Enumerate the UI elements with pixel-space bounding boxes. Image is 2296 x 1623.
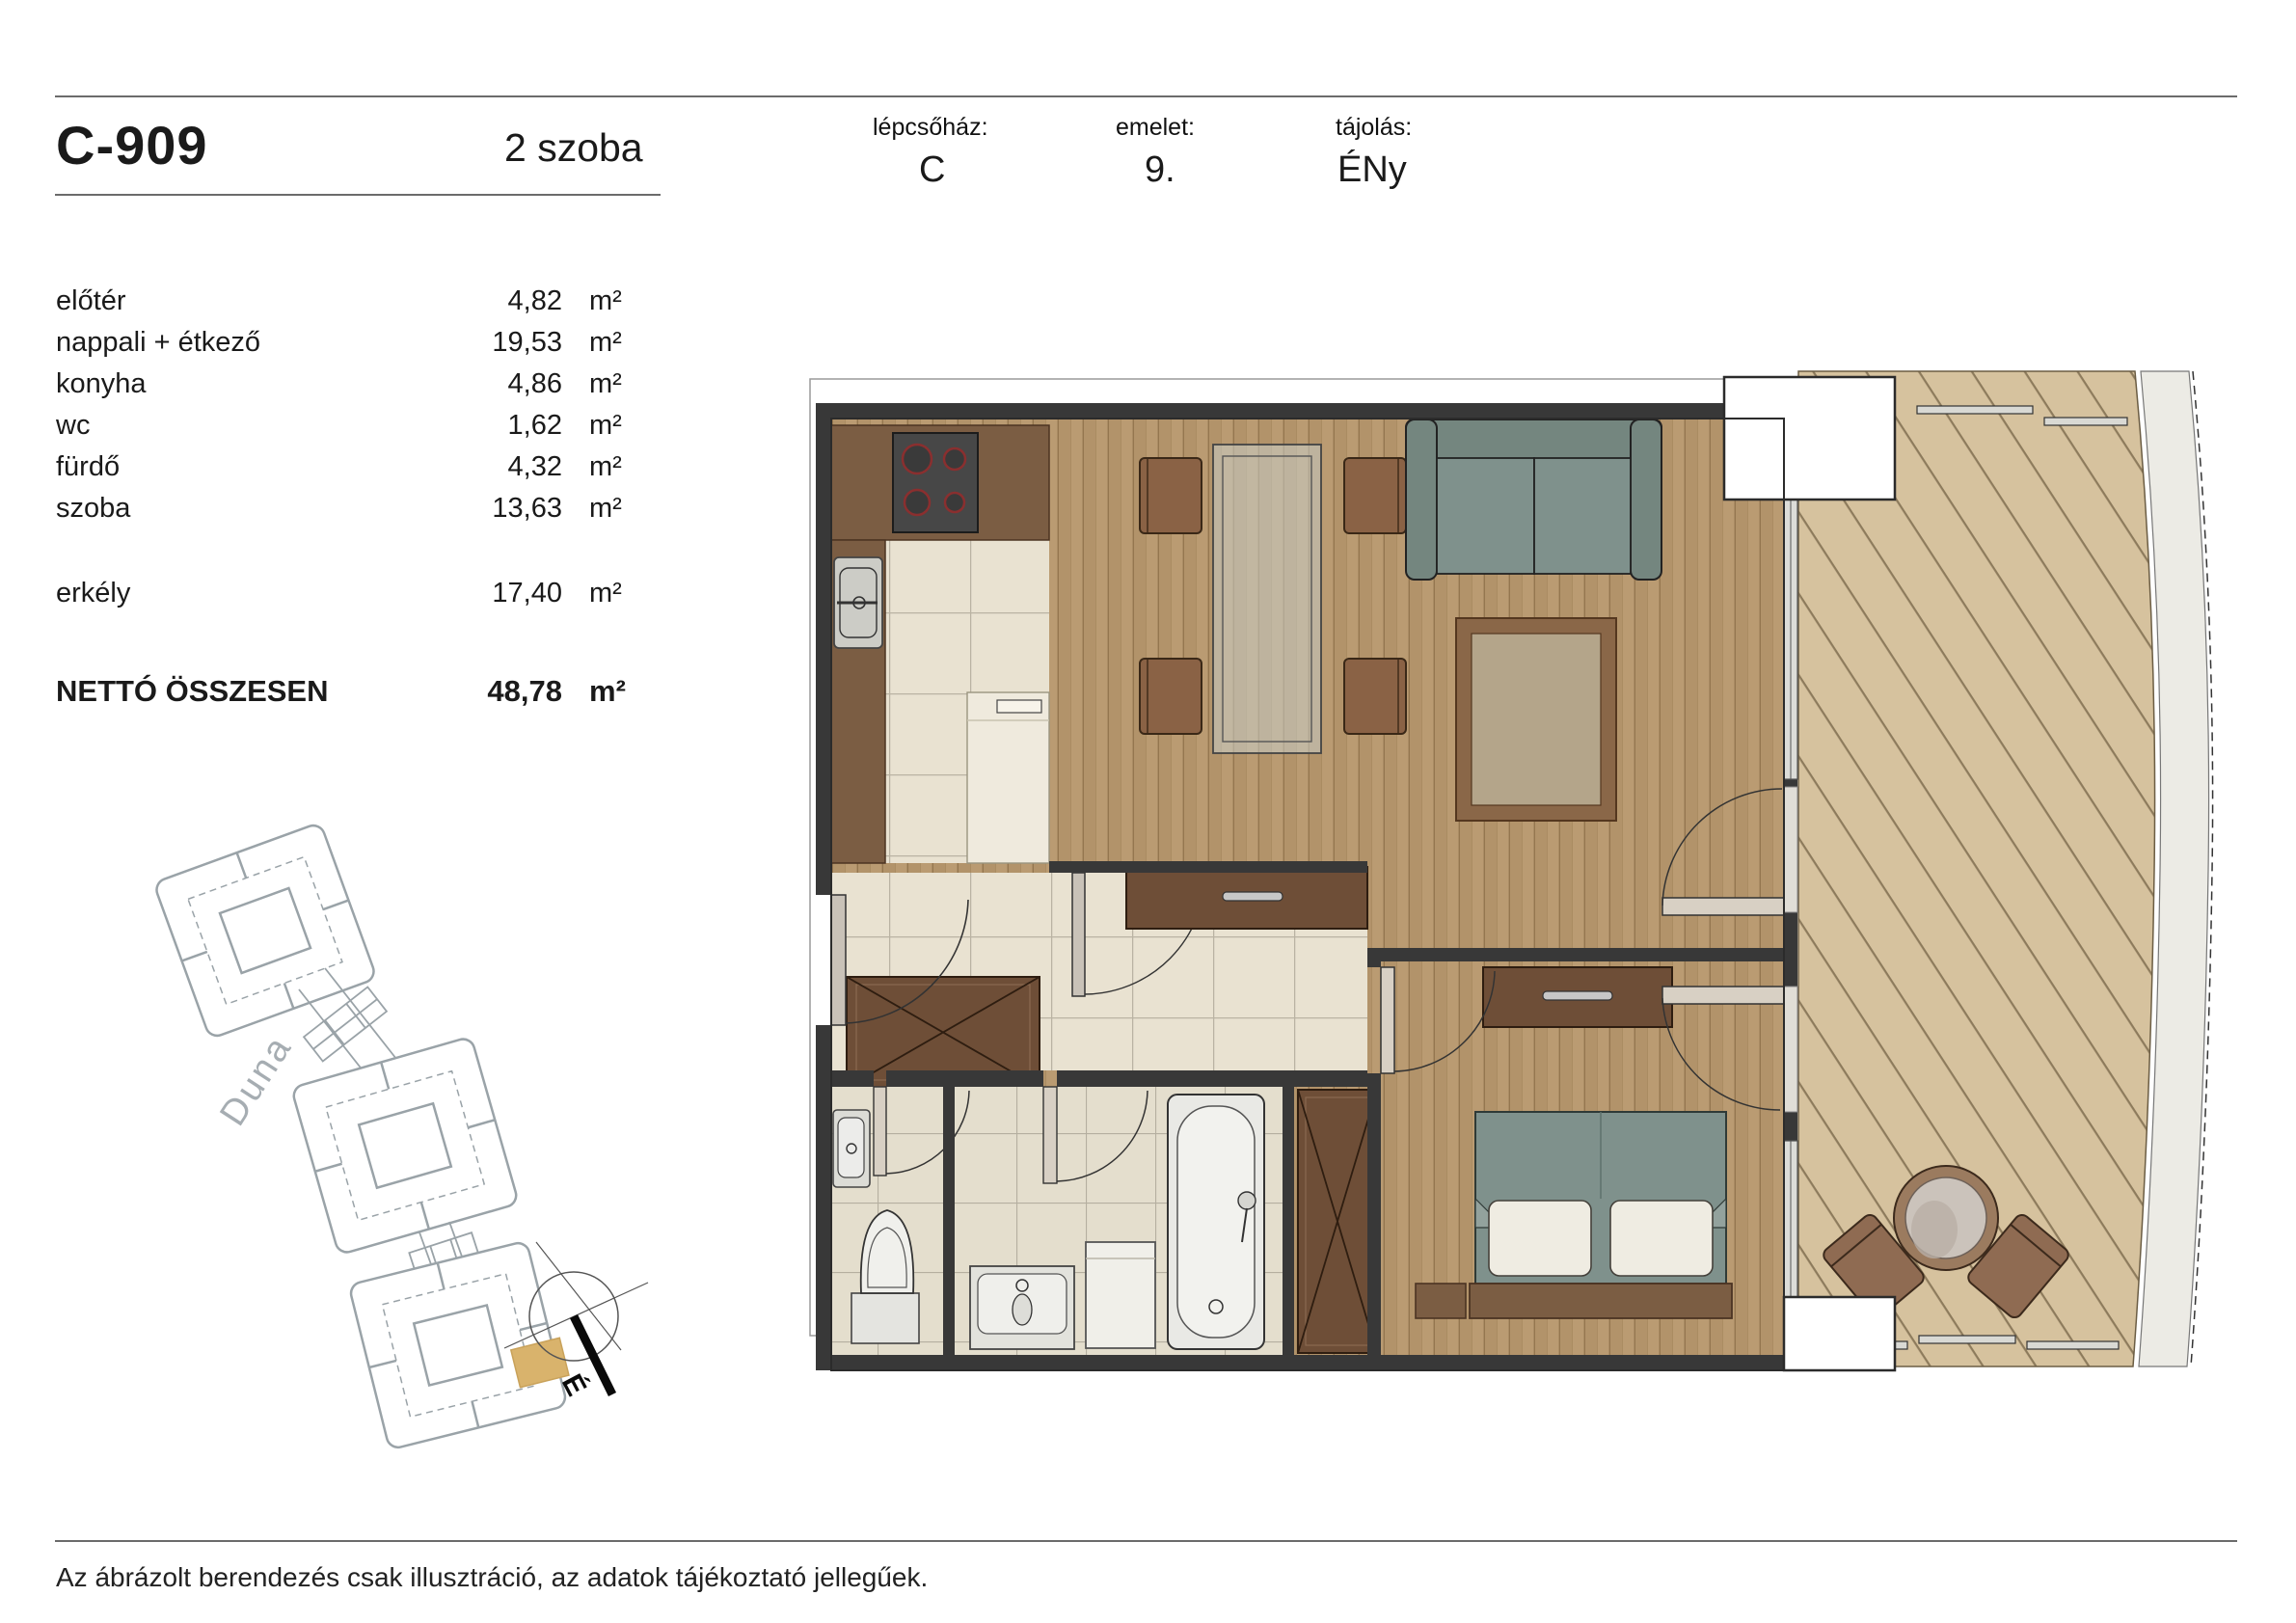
kitchen-base-cabinet bbox=[967, 692, 1049, 863]
area-row-nappali: nappali + étkező 19,53 m² bbox=[56, 327, 673, 368]
site-building-2 bbox=[291, 1037, 519, 1256]
area-row-szoba: szoba 13,63 m² bbox=[56, 493, 673, 534]
staircase-value: C bbox=[873, 149, 988, 191]
dining-chair bbox=[1140, 458, 1202, 533]
stove-cooktop bbox=[893, 433, 978, 532]
wall-notch-bottom bbox=[1784, 1297, 1895, 1370]
bedroom-nightstand bbox=[1416, 1284, 1466, 1318]
header-field-staircase: lépcsőház: C bbox=[873, 114, 988, 191]
staircase-label: lépcsőház: bbox=[873, 114, 988, 142]
footer-disclaimer: Az ábrázolt berendezés csak illusztráció… bbox=[56, 1562, 928, 1593]
dining-chair bbox=[1344, 458, 1406, 533]
bathroom-washbasin bbox=[970, 1266, 1074, 1349]
kitchen-tile-floor bbox=[885, 540, 967, 863]
floor-value: 9. bbox=[1116, 149, 1195, 191]
unit-id-title: C-909 bbox=[56, 114, 208, 176]
room-area-table: előtér 4,82 m² nappali + étkező 19,53 m²… bbox=[56, 285, 673, 716]
kitchen bbox=[831, 425, 1049, 863]
sofa bbox=[1406, 419, 1661, 580]
wc-room bbox=[831, 1087, 943, 1355]
bed-pillow-left bbox=[1489, 1201, 1591, 1276]
wc-washbasin bbox=[833, 1110, 870, 1187]
title-underline bbox=[55, 194, 661, 196]
bedroom-wardrobe bbox=[1298, 1090, 1377, 1353]
site-building-3 bbox=[349, 1238, 577, 1449]
bathtub bbox=[1168, 1095, 1264, 1349]
bedroom-dresser bbox=[1483, 967, 1672, 1027]
bed-headboard bbox=[1470, 1284, 1732, 1318]
footer-divider-line bbox=[55, 1540, 2237, 1542]
dining-chair bbox=[1344, 659, 1406, 734]
site-location-map: Duna É bbox=[125, 743, 723, 1495]
area-row-eloter: előtér 4,82 m² bbox=[56, 285, 673, 327]
wall-bottom bbox=[816, 1355, 1784, 1370]
unit-room-count: 2 szoba bbox=[504, 125, 643, 171]
area-row-erkely: erkély 17,40 m² bbox=[56, 578, 673, 619]
tv-sideboard bbox=[1126, 867, 1367, 929]
orientation-value: ÉNy bbox=[1336, 149, 1412, 191]
wall-notch-top bbox=[1724, 377, 1895, 500]
kitchen-sink bbox=[834, 557, 882, 648]
header-field-floor: emelet: 9. bbox=[1116, 114, 1195, 191]
header-divider-line bbox=[55, 95, 2237, 97]
river-label: Duna bbox=[212, 1028, 300, 1133]
floor-label: emelet: bbox=[1116, 114, 1195, 142]
dining-table bbox=[1213, 445, 1321, 753]
floorplan-datasheet-page: C-909 2 szoba lépcsőház: C emelet: 9. tá… bbox=[0, 0, 2296, 1623]
header-field-orientation: tájolás: ÉNy bbox=[1336, 114, 1412, 191]
apartment-floor-plan bbox=[808, 369, 2296, 1420]
area-row-total: NETTÓ ÖSSZESEN 48,78 m² bbox=[56, 674, 673, 716]
area-row-furdo: fürdő 4,32 m² bbox=[56, 451, 673, 493]
area-row-konyha: konyha 4,86 m² bbox=[56, 368, 673, 410]
balcony bbox=[1798, 371, 2213, 1366]
area-row-wc: wc 1,62 m² bbox=[56, 410, 673, 451]
bed-pillow-right bbox=[1610, 1201, 1713, 1276]
coffee-table bbox=[1456, 618, 1616, 821]
wall-top bbox=[816, 403, 1724, 419]
dining-chair bbox=[1140, 659, 1202, 734]
double-bed bbox=[1470, 1112, 1732, 1318]
orientation-label: tájolás: bbox=[1336, 114, 1412, 142]
